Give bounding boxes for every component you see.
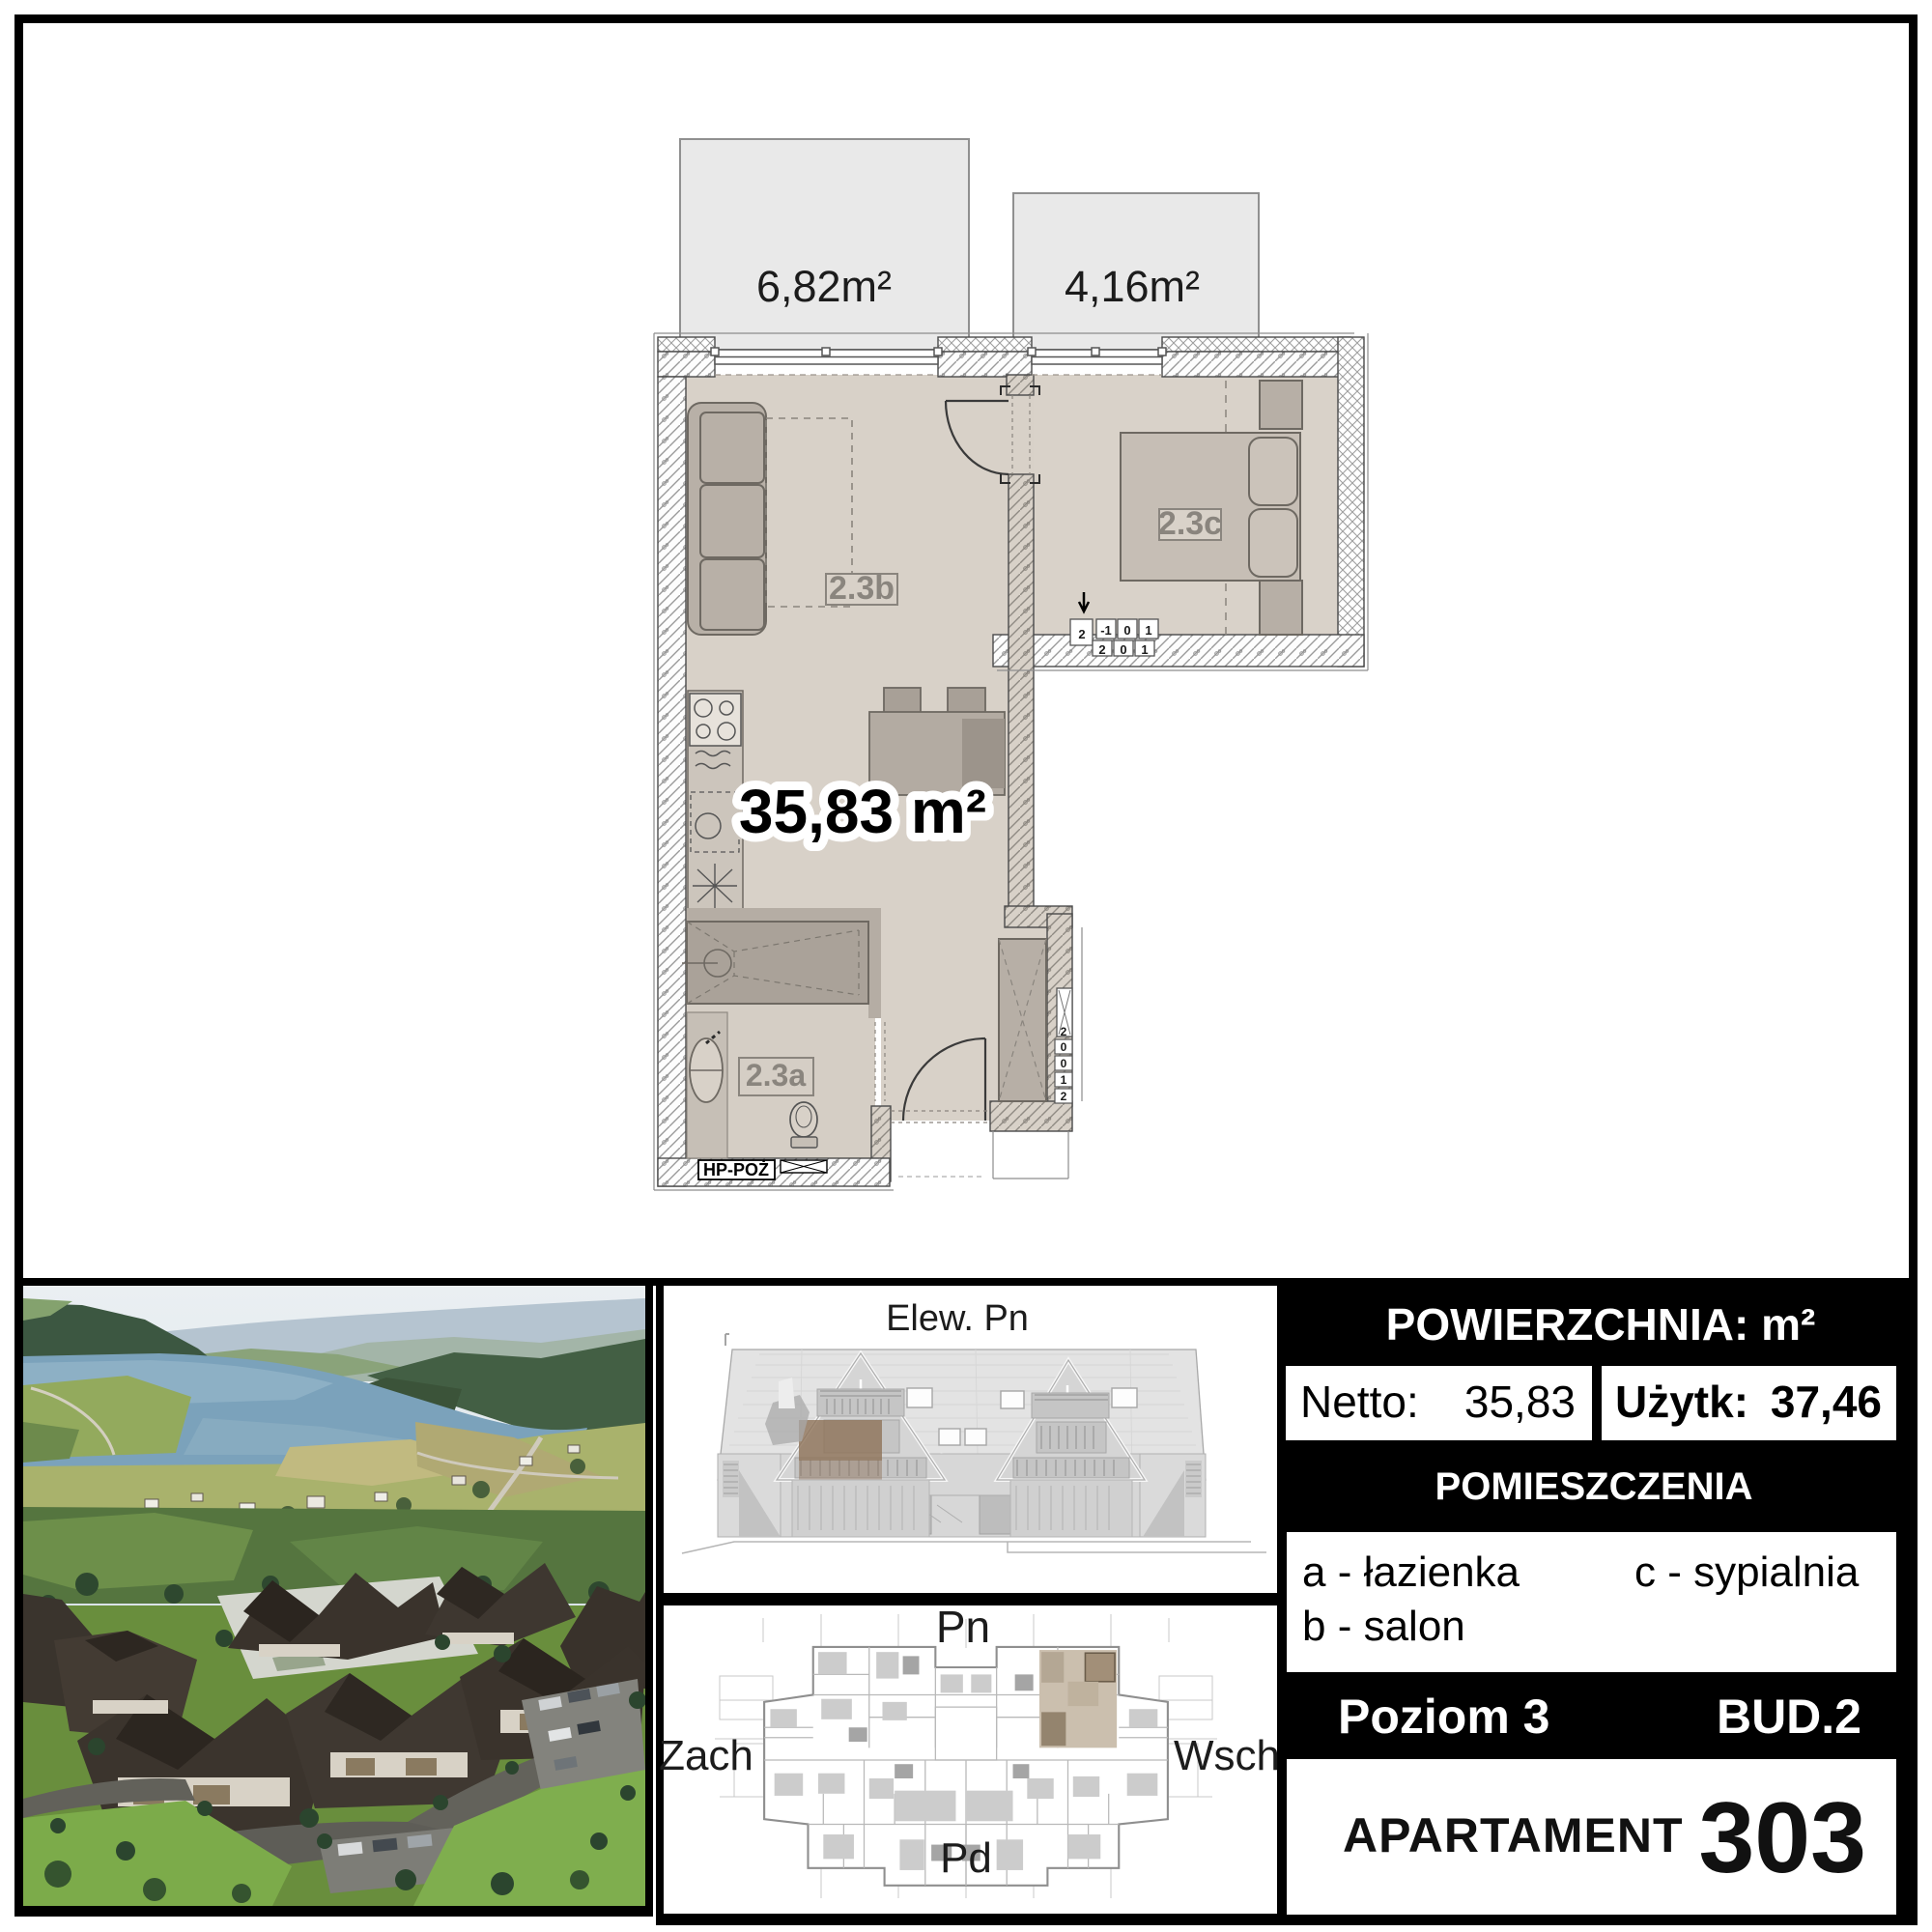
svg-text:APARTAMENT: APARTAMENT (1343, 1808, 1684, 1862)
svg-text:1: 1 (1061, 1073, 1067, 1087)
svg-text:1: 1 (1141, 642, 1148, 657)
svg-text:Poziom 3: Poziom 3 (1338, 1690, 1549, 1744)
svg-text:Użytk:: Użytk: (1615, 1377, 1748, 1427)
svg-text:Elew. Pn: Elew. Pn (886, 1298, 1029, 1339)
svg-text:2: 2 (1078, 627, 1085, 641)
svg-text:Zach: Zach (659, 1732, 753, 1779)
svg-text:-1: -1 (1100, 623, 1112, 638)
svg-text:37,46: 37,46 (1771, 1377, 1882, 1427)
svg-text:Pd: Pd (940, 1834, 992, 1882)
svg-text:2.3c: 2.3c (1158, 505, 1222, 542)
svg-text:Pn: Pn (936, 1602, 990, 1652)
svg-text:2: 2 (1098, 642, 1105, 657)
svg-text:2: 2 (1061, 1090, 1067, 1103)
svg-text:0: 0 (1061, 1057, 1067, 1070)
svg-text:HP-POŻ: HP-POŻ (703, 1160, 769, 1179)
svg-text:b - salon: b - salon (1302, 1603, 1465, 1650)
svg-text:2.3a: 2.3a (746, 1058, 806, 1093)
svg-text:2: 2 (1061, 1025, 1067, 1038)
svg-text:6,82m²: 6,82m² (756, 262, 892, 311)
svg-text:BUD.2: BUD.2 (1717, 1690, 1861, 1744)
svg-text:POWIERZCHNIA: m²: POWIERZCHNIA: m² (1386, 1299, 1816, 1350)
svg-text:0: 0 (1061, 1040, 1067, 1054)
svg-text:a - łazienka: a - łazienka (1302, 1548, 1520, 1596)
svg-text:POMIESZCZENIA: POMIESZCZENIA (1435, 1465, 1753, 1508)
svg-text:35,83 m²: 35,83 m² (739, 777, 986, 846)
svg-text:0: 0 (1123, 623, 1130, 638)
svg-text:35,83: 35,83 (1464, 1377, 1576, 1427)
svg-text:1: 1 (1145, 623, 1151, 638)
svg-text:2.3b: 2.3b (829, 570, 895, 607)
svg-text:c - sypialnia: c - sypialnia (1634, 1548, 1860, 1596)
svg-text:Wsch: Wsch (1174, 1732, 1280, 1779)
svg-text:4,16m²: 4,16m² (1065, 262, 1200, 311)
svg-text:303: 303 (1698, 1782, 1866, 1894)
svg-text:Netto:: Netto: (1300, 1377, 1419, 1427)
svg-text:0: 0 (1120, 642, 1126, 657)
